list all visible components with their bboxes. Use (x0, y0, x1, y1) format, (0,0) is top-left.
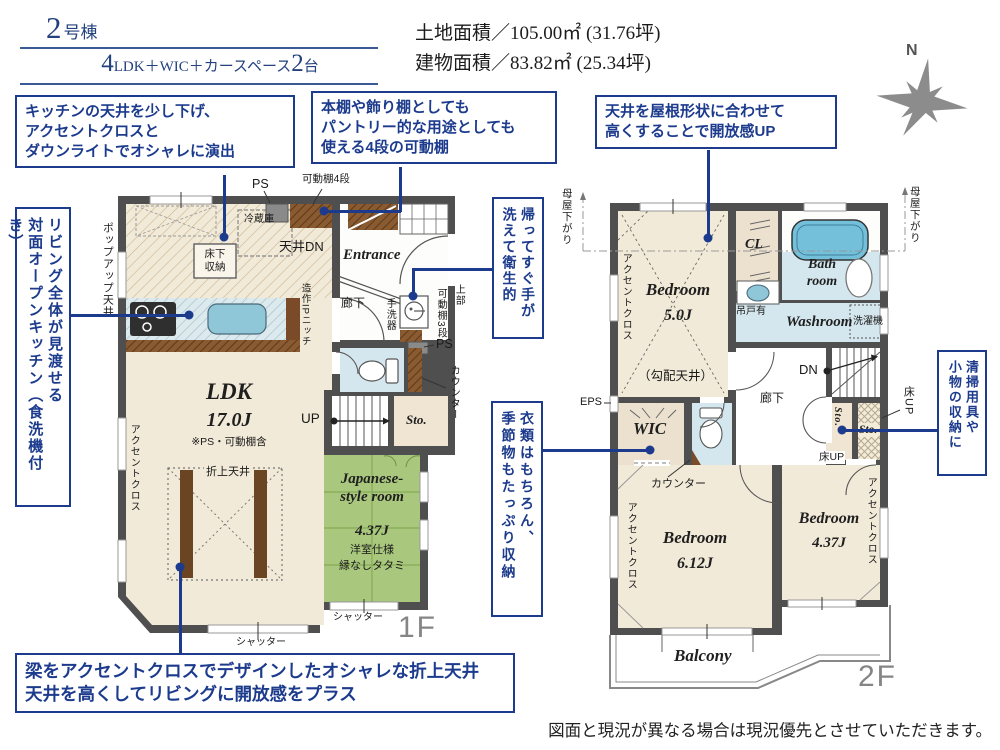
f2-washroom-label: Washroom (786, 313, 852, 331)
f1-hall-label: 廊下 (341, 296, 365, 311)
f2-cl-label: CL (745, 236, 763, 253)
f1-niche-label: 造作IPニッチ (299, 283, 311, 346)
f1-fridge-label: 冷蔵庫 (244, 214, 274, 226)
f1-ps-top-label: PS (252, 177, 269, 192)
f1-coffered-label: 折上天井 (204, 466, 252, 479)
f1-ldk-label: LDK (179, 378, 279, 406)
header-rule-1 (20, 47, 378, 49)
f1-handbasin-label: 手洗器 (383, 298, 395, 331)
leader-2-dot (320, 207, 329, 216)
f1-accent-label: アクセントクロス (127, 424, 139, 512)
f2-bed6-size-label: 6.12J (635, 554, 755, 574)
callout-wash-hands: 帰ってすぐ手が 洗えて衛生的 (492, 197, 544, 339)
leader-8-dot (176, 563, 185, 572)
f2-bed4-size-label: 4.37J (781, 534, 877, 552)
plan-cars-unit: 台 (304, 59, 319, 75)
f2-accent4-label: アクセントクロス (864, 477, 876, 565)
f2-moya-left-label: 母屋下がり (560, 188, 573, 246)
f1-shutter2-label: シャッター (333, 612, 383, 624)
plan-rooms: 4 (101, 50, 114, 77)
f1-ps-mid-label: PS (436, 337, 453, 352)
leader-6-dot (646, 446, 655, 455)
f2-hanging-cabinet-label: 吊戸有 (736, 306, 766, 318)
leader-1 (223, 175, 226, 237)
compass-star (872, 52, 972, 144)
f1-ceiling-dn-label: 天井DN (279, 239, 324, 255)
plan-cars: 2 (291, 50, 304, 77)
callout-cleaning-storage: 清掃用具や 小物の収納に (937, 350, 987, 476)
land-area: 土地面積／105.00㎡ (31.76坪) (415, 18, 660, 45)
building-area: 建物面積／83.82㎡ (25.34坪) (415, 48, 651, 75)
f1-shelf3-label: 可動棚3段 (434, 288, 446, 339)
f2-counter-label: カウンター (651, 478, 706, 491)
f2-accent5-label: アクセントクロス (619, 253, 631, 341)
f2-bed5-size-label: 5.0J (620, 306, 736, 326)
f2-bed6-label: Bedroom (635, 528, 755, 549)
leader-4-dot (185, 311, 194, 320)
plan-desc: LDK＋WIC＋カースペース (114, 59, 291, 75)
leader-5-dot (409, 292, 418, 301)
f2-floor-label: 2F (858, 660, 897, 694)
f2-eps-label: EPS (580, 396, 602, 409)
f2-bed4-label: Bedroom (781, 509, 877, 529)
leader-6 (543, 449, 650, 452)
floorplan-2f (555, 182, 917, 702)
leader-3 (707, 150, 710, 238)
leader-2h (324, 210, 401, 213)
callout-kitchen-ceiling: キッチンの天井を少し下げ、 アクセントクロスと ダウンライトでオシャレに演出 (15, 95, 295, 168)
leader-7-dot (838, 426, 847, 435)
f1-popup-ceiling-label: ポップアップ天井 (100, 222, 113, 318)
f1-jproom-size-label: 4.37J (322, 522, 422, 540)
f1-underfloor-label: 床下 収納 (196, 248, 234, 274)
f2-floorup-bottom-label: 床UP (818, 451, 845, 464)
leader-7 (842, 429, 937, 432)
leader-4 (68, 314, 189, 317)
f2-accent6-label: アクセントクロス (624, 502, 636, 590)
f2-hall-label: 廊下 (760, 391, 784, 406)
f2-bath-label: Bath room (792, 256, 852, 290)
f1-counter-label: カウンター (447, 365, 459, 420)
flyer-page: 2 号棟 4LDK＋WIC＋カースペース2台 土地面積／105.00㎡ (31.… (0, 0, 1000, 750)
f1-jproom-note1-label: 洋室仕様 (322, 544, 422, 557)
building-number: 2 号棟 (46, 10, 98, 46)
f2-sloped-ceiling-label: （勾配天井） (638, 369, 713, 384)
leader-5h (413, 268, 493, 271)
f1-shutter1-label: シャッター (236, 637, 286, 649)
f1-floor-label: 1F (398, 611, 437, 645)
f2-washer-label: 洗濯機 (853, 316, 883, 328)
leader-3-dot (704, 234, 713, 243)
callout-movable-shelf: 本棚や飾り棚としても パントリー的な用途としても 使える4段の可動棚 (311, 91, 557, 164)
f2-moya-right-label: 母屋下がり (908, 186, 921, 244)
callout-open-kitchen: リビング全体が見渡せる 対面オープンキッチン（食洗機付き） (15, 207, 71, 507)
f1-upper-label: 上部 (452, 284, 464, 306)
f1-entrance-label: Entrance (343, 246, 401, 264)
building-number-digit: 2 (46, 10, 62, 46)
callout-roof-ceiling: 天井を屋根形状に合わせて 高くすることで開放感UP (595, 95, 837, 149)
disclaimer: 図面と現況が異なる場合は現況優先とさせていただきます。 (548, 717, 992, 741)
building-number-suffix: 号棟 (64, 18, 98, 43)
leader-8 (179, 567, 182, 653)
compass-north-label: N (906, 42, 918, 60)
callout-coffered-ceiling: 梁をアクセントクロスでデザインしたオシャレな折上天井 天井を高くしてリビングに開… (15, 653, 515, 713)
f2-wic-label: WIC (633, 419, 666, 440)
f1-jproom-note2-label: 縁なしタタミ (322, 560, 422, 573)
f1-up-label: UP (301, 411, 320, 427)
f1-sto-label: Sto. (406, 412, 427, 428)
f1-shelf4-label: 可動棚4段 (302, 173, 350, 186)
f2-floorup-right-label: 床UP (901, 386, 914, 415)
header-rule-2 (20, 83, 378, 85)
f1-ldk-size-label: 17.0J (179, 408, 279, 432)
compass-icon (872, 52, 972, 152)
callout-wic-storage: 衣類はもちろん、 季節物もたっぷり収納 (491, 401, 543, 617)
f2-balcony-label: Balcony (674, 646, 732, 667)
f1-jproom-label: Japanese- style room (322, 470, 422, 507)
f2-sto-small-label: Sto. (831, 407, 843, 427)
f2-dn-label: DN (799, 362, 818, 378)
f1-ldk-note-label: ※PS・可動棚含 (169, 436, 289, 449)
plan-type: 4LDK＋WIC＋カースペース2台 (60, 50, 360, 78)
leader-1-dot (220, 233, 229, 242)
leader-2v (399, 167, 402, 212)
f2-bed5-label: Bedroom (620, 280, 736, 301)
